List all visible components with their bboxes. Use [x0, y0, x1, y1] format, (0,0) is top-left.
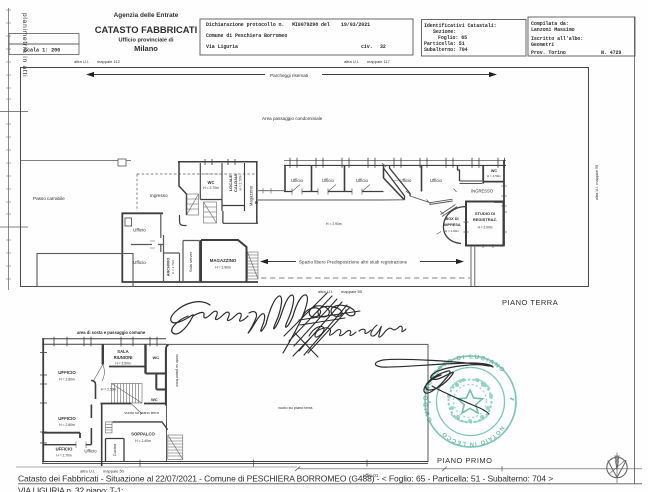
- svg-text:INGRESSO: INGRESSO: [471, 189, 494, 194]
- svg-text:H = 2.70m: H = 2.70m: [56, 454, 72, 458]
- svg-text:H = 2.90m: H = 2.90m: [445, 229, 459, 233]
- svg-text:H = 2.90m: H = 2.90m: [215, 266, 231, 270]
- svg-text:H = 2.70m: H = 2.70m: [203, 186, 219, 190]
- svg-text:vuoto su piano terra: vuoto su piano terra: [175, 354, 179, 388]
- svg-text:area di sosta e passaggio comu: area di sosta e passaggio comune: [77, 330, 146, 335]
- svg-text:SALA: SALA: [117, 349, 128, 354]
- svg-text:Comune di Peschiera Borromeo: Comune di Peschiera Borromeo: [206, 33, 287, 39]
- svg-text:Scala 1: 200: Scala 1: 200: [24, 48, 60, 54]
- svg-text:— Ufficio: — Ufficio: [394, 178, 412, 183]
- svg-text:UFFICIO: UFFICIO: [58, 416, 76, 421]
- svg-text:H = 2.40m: H = 2.40m: [135, 439, 151, 443]
- svg-text:Catasto dei Fabbricati - Situa: Catasto dei Fabbricati - Situazione al 2…: [18, 474, 553, 484]
- svg-text:Agenzia delle Entrate: Agenzia delle Entrate: [114, 12, 179, 19]
- svg-text:Parcheggi riservati: Parcheggi riservati: [270, 73, 308, 78]
- svg-text:UFFICIO: UFFICIO: [56, 447, 73, 452]
- svg-text:altra U.I.: altra U.I.: [344, 59, 359, 64]
- svg-text:altra U.I. mappale 99: altra U.I. mappale 99: [595, 165, 599, 200]
- svg-text:H = 2.70m: H = 2.70m: [239, 175, 243, 190]
- svg-text:Cucina: Cucina: [112, 443, 117, 456]
- svg-text:H = 2.90m: H = 2.90m: [478, 226, 493, 230]
- svg-text:Ingresso: Ingresso: [150, 193, 168, 198]
- svg-text:RIUNIONI: RIUNIONI: [114, 355, 133, 360]
- svg-text:Area passaggio condominiale: Area passaggio condominiale: [262, 116, 323, 121]
- svg-text:Ufficio: Ufficio: [322, 178, 334, 183]
- svg-text:H = 2.50m: H = 2.50m: [487, 174, 501, 178]
- svg-text:Ufficio: Ufficio: [430, 178, 442, 183]
- svg-text:CATASTO FABBRICATI: CATASTO FABBRICATI: [95, 24, 197, 35]
- svg-text:Geometri: Geometri: [531, 42, 554, 48]
- svg-text:altra U.I.: altra U.I.: [318, 289, 333, 294]
- svg-text:WC: WC: [153, 355, 160, 360]
- svg-text:Ufficio: Ufficio: [133, 228, 146, 233]
- svg-text:Ufficio: Ufficio: [291, 178, 303, 183]
- svg-text:mappale 55: mappale 55: [341, 289, 363, 294]
- svg-text:Lanzoni Massimo: Lanzoni Massimo: [531, 27, 575, 33]
- svg-text:H = 2.90m: H = 2.90m: [326, 222, 342, 226]
- svg-text:H = 2.50m: H = 2.50m: [101, 388, 117, 392]
- svg-text:Prov. Torino: Prov. Torino: [531, 50, 566, 56]
- svg-text:Ufficio: Ufficio: [356, 178, 368, 183]
- svg-text:WC: WC: [151, 397, 158, 402]
- svg-text:mappale 112: mappale 112: [97, 59, 121, 64]
- svg-text:vuoto su piano terra: vuoto su piano terra: [278, 405, 313, 410]
- svg-text:UFFICIO: UFFICIO: [58, 370, 76, 375]
- svg-text:H = 2.80m: H = 2.80m: [59, 378, 75, 382]
- svg-text:VIA LIGURIA n. 32 piano: T-1;: VIA LIGURIA n. 32 piano: T-1;: [18, 486, 123, 492]
- svg-text:Ufficio: Ufficio: [84, 449, 97, 454]
- svg-text:altra U.I.: altra U.I.: [74, 59, 89, 64]
- svg-text:H = 2.50m: H = 2.50m: [115, 362, 131, 366]
- svg-text:REGISTRAZ.: REGISTRAZ.: [473, 217, 497, 222]
- svg-text:Sala server: Sala server: [188, 251, 193, 272]
- svg-text:Spazio libero Predisposizione: Spazio libero Predisposizione altri stud…: [299, 260, 408, 265]
- svg-text:Subalterno: 704: Subalterno: 704: [424, 47, 468, 53]
- svg-text:Magazzino: Magazzino: [249, 185, 254, 206]
- svg-text:Dichiarazione protocollo n.: Dichiarazione protocollo n.: [206, 22, 284, 28]
- svg-text:PIANO PRIMO: PIANO PRIMO: [437, 456, 493, 465]
- svg-text:Passo carrabile: Passo carrabile: [33, 196, 65, 201]
- svg-text:Via Liguria: Via Liguria: [206, 44, 238, 50]
- svg-text:STUDIO DI: STUDIO DI: [475, 211, 495, 216]
- svg-text:MAGAZZINO: MAGAZZINO: [210, 258, 237, 263]
- svg-text:IMPRESA: IMPRESA: [443, 223, 461, 227]
- svg-text:32: 32: [380, 44, 386, 50]
- svg-text:SOPPALCO: SOPPALCO: [131, 432, 155, 437]
- svg-text:Ufficio: Ufficio: [133, 260, 146, 265]
- svg-text:PIANO TERRA: PIANO TERRA: [502, 298, 558, 307]
- svg-text:MI0079298 del: MI0079298 del: [292, 22, 330, 28]
- svg-text:WC: WC: [208, 180, 215, 185]
- svg-text:ARCHIVIO: ARCHIVIO: [167, 258, 171, 277]
- svg-text:mappale 117: mappale 117: [367, 59, 391, 64]
- svg-text:WC: WC: [491, 169, 498, 173]
- svg-text:CALDAIA: CALDAIA: [233, 174, 238, 192]
- svg-text:Milano: Milano: [134, 44, 158, 53]
- svg-text:19/03/2021: 19/03/2021: [341, 22, 370, 28]
- svg-text:H = 2.80m: H = 2.80m: [59, 423, 75, 427]
- svg-text:H = 2.70m: H = 2.70m: [171, 260, 175, 274]
- svg-text:BOX DI: BOX DI: [445, 217, 458, 221]
- svg-text:Ufficio provinciale di: Ufficio provinciale di: [118, 38, 173, 44]
- svg-text:civ.: civ.: [361, 44, 373, 50]
- svg-text:N. 4729: N. 4729: [601, 50, 621, 56]
- svg-text:vuoto su piano terra: vuoto su piano terra: [124, 410, 159, 415]
